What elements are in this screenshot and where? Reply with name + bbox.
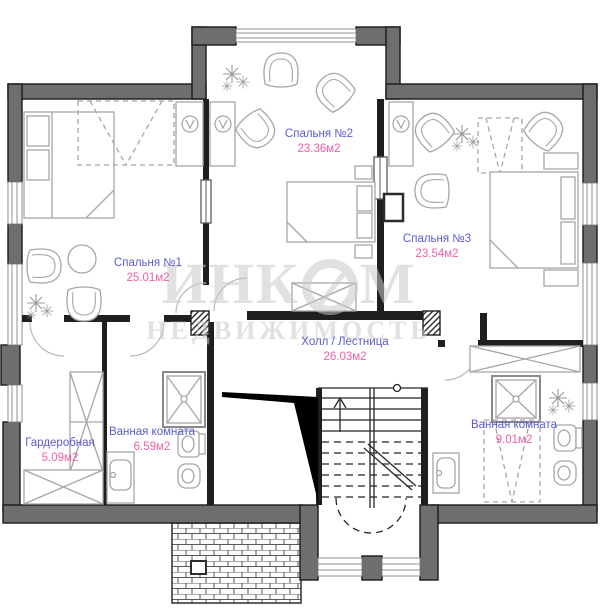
- sink: [433, 453, 459, 493]
- room-label-bedroom-1: Спальня №1 25.01м2: [58, 256, 238, 285]
- armchair: [310, 67, 358, 115]
- staircase: [318, 385, 428, 534]
- room-name: Ванная комната: [62, 425, 242, 440]
- armchair: [521, 106, 569, 154]
- room-area: 26.03м2: [255, 350, 435, 365]
- plant: [222, 65, 250, 91]
- room-label-bathroom-2: Ванная комната 9.01м2: [424, 418, 600, 447]
- room-area: 6.59м2: [62, 440, 242, 455]
- bed: [24, 112, 114, 218]
- room-name: Спальня №2: [229, 127, 409, 142]
- armchair: [415, 174, 449, 208]
- cabinet: [470, 346, 580, 372]
- armchair: [264, 53, 298, 87]
- stair-up-arrow: [334, 398, 346, 432]
- room-area: 23.36м2: [229, 142, 409, 157]
- plant: [26, 294, 54, 320]
- shower: [492, 376, 540, 422]
- bedroom1-furniture: [24, 101, 203, 321]
- closet-low: [24, 470, 103, 504]
- terrace-tiles: [172, 523, 301, 603]
- room-name: Спальня №1: [58, 256, 238, 271]
- wall-niche: [384, 194, 403, 221]
- floor-plan-canvas: ИНК М НЕДВИЖИМОСТЬ Спальня №1 25.01м2 Сп…: [0, 0, 600, 608]
- bidet: [178, 464, 200, 488]
- room-name: Спальня №3: [347, 232, 527, 247]
- wardrobe-dashed: [478, 118, 522, 173]
- room-area: 23.54м2: [347, 247, 527, 262]
- desk: [176, 102, 203, 166]
- room-label-hall-stairs: Холл / Лестница 26.03м2: [255, 335, 435, 364]
- room-area: 9.01м2: [424, 433, 600, 448]
- shower: [163, 372, 205, 427]
- room-area: 25.01м2: [58, 271, 238, 286]
- room-label-bedroom-3: Спальня №3 23.54м2: [347, 232, 527, 261]
- plant: [452, 125, 480, 151]
- room-name: Холл / Лестница: [255, 335, 435, 350]
- hatched-wall-block: [191, 311, 209, 335]
- room-label-bedroom-2: Спальня №2 23.36м2: [229, 127, 409, 156]
- armchair: [409, 107, 457, 155]
- floor-plan-drawing: [0, 0, 600, 608]
- bidet: [554, 461, 576, 485]
- room-name: Ванная комната: [424, 418, 600, 433]
- armchair: [67, 287, 101, 321]
- armchair: [27, 249, 61, 283]
- plant: [548, 389, 576, 415]
- bed: [490, 153, 578, 286]
- dresser: [292, 283, 356, 311]
- hatched-wall-block: [423, 311, 440, 335]
- room-label-bathroom-1: Ванная комната 6.59м2: [62, 425, 242, 454]
